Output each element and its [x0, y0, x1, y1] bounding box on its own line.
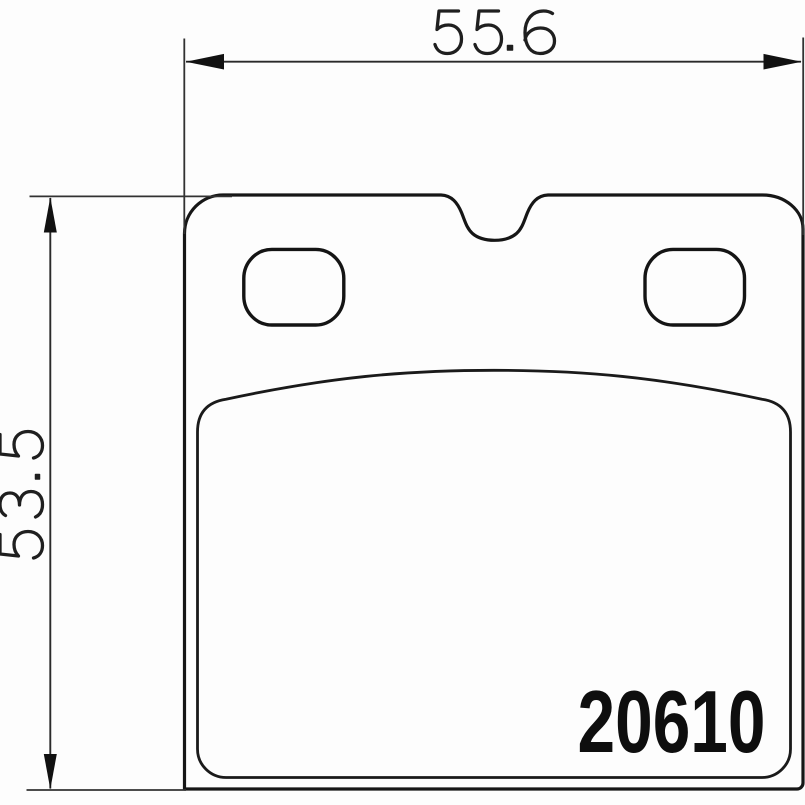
svg-text:20610: 20610 [578, 672, 766, 771]
